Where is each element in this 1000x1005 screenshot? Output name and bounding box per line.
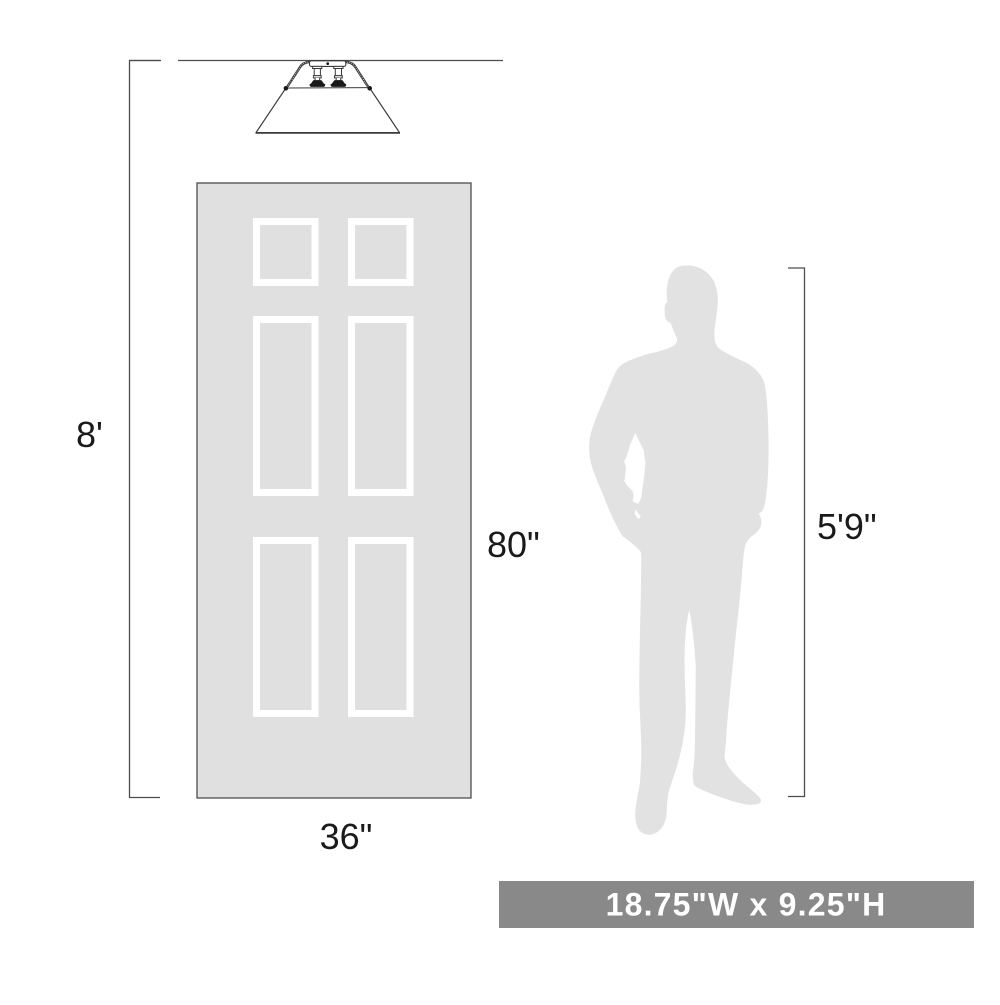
svg-text:80": 80" xyxy=(487,524,540,565)
svg-text:8': 8' xyxy=(76,414,103,455)
svg-text:18.75"W x 9.25"H: 18.75"W x 9.25"H xyxy=(606,887,887,923)
svg-text:36": 36" xyxy=(320,816,373,857)
svg-text:5'9": 5'9" xyxy=(817,506,877,547)
